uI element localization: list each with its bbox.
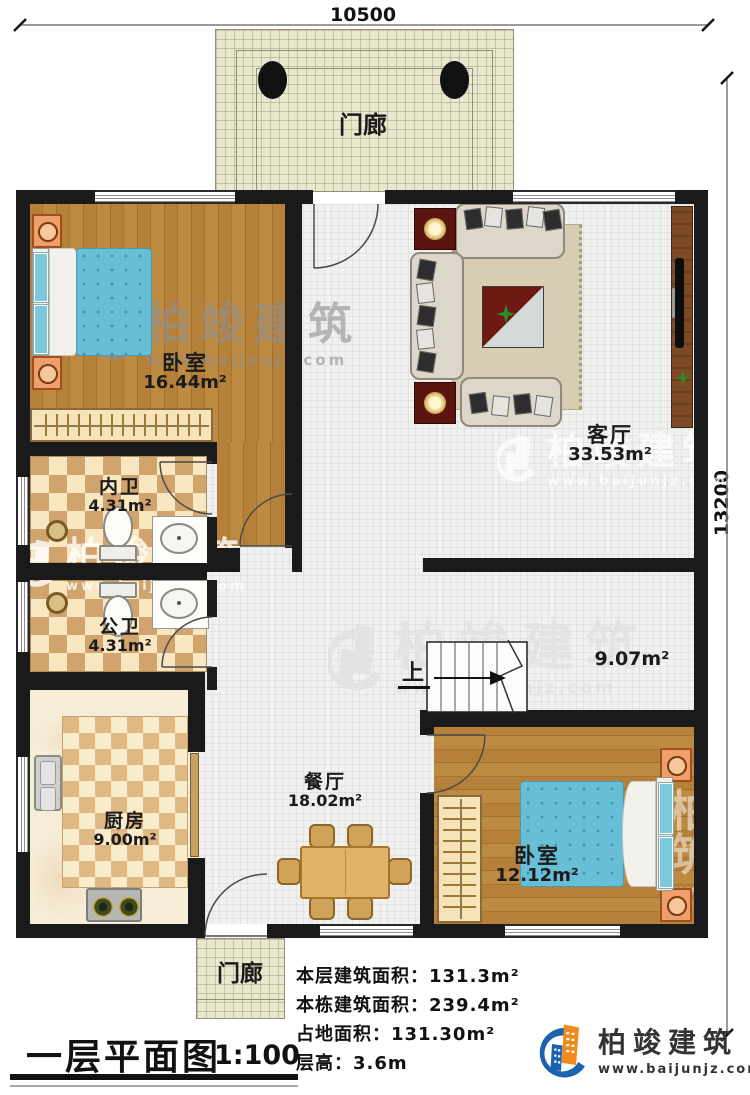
bed-pillow <box>34 305 48 354</box>
stairs-up-text: 上 <box>398 662 430 689</box>
title-underline-thin <box>10 1085 298 1087</box>
info-value: 239.4m² <box>429 995 520 1016</box>
porch-column <box>258 61 287 99</box>
info-floor-area: 本层建筑面积：131.3m² <box>296 962 520 988</box>
bedroom1-label: 卧室 16.44m² <box>120 352 250 393</box>
room-name: 厨房 <box>60 812 190 832</box>
wall <box>207 580 217 617</box>
wall <box>16 442 217 456</box>
info-label: 层高： <box>296 1053 353 1074</box>
wall <box>420 710 694 727</box>
sofa-pillow <box>505 208 524 229</box>
bath-inner-label: 内卫 4.31m² <box>55 478 185 515</box>
info-footprint-area: 占地面积：131.30m² <box>296 1020 495 1046</box>
kitchen-door-leaf <box>190 753 199 857</box>
wall <box>385 190 513 204</box>
room-area: 12.12m² <box>472 867 602 886</box>
info-value: 131.3m² <box>429 966 520 987</box>
info-value: 3.6m <box>353 1053 408 1074</box>
sofa-pillow <box>464 208 484 230</box>
dining-chair <box>309 896 335 920</box>
window <box>513 190 675 204</box>
bed-blanket <box>76 248 152 356</box>
sofa-pillow <box>416 282 435 304</box>
room-area: 16.44m² <box>120 374 250 393</box>
side-table <box>414 208 456 250</box>
wall <box>16 924 205 938</box>
right-dimension-label: 13200 <box>711 453 733 553</box>
info-value: 131.30m² <box>391 1024 495 1045</box>
title-underline <box>10 1074 298 1080</box>
company-name: 柏竣建筑 <box>598 1029 750 1057</box>
room-area: 33.53m² <box>545 446 675 465</box>
dining-chair <box>347 824 373 848</box>
tv-stand <box>672 288 675 318</box>
window <box>16 582 30 652</box>
nightstand <box>660 888 692 922</box>
window <box>505 924 620 938</box>
porch-bottom-label: 门廊 <box>198 962 282 986</box>
dining-table <box>300 846 390 899</box>
drawing-title: 一层平面图 <box>26 1028 221 1080</box>
side-table <box>414 382 456 424</box>
table-lamp <box>424 392 446 414</box>
wall <box>207 456 217 464</box>
wall <box>207 548 240 572</box>
wall <box>285 204 302 548</box>
sofa-pillow <box>534 395 554 417</box>
room-name: 客厅 <box>545 424 675 446</box>
hallway-floor <box>217 442 285 546</box>
wardrobe-rail <box>34 425 209 427</box>
stove-burner <box>93 897 113 917</box>
porch-column <box>440 61 469 99</box>
faucet-dot <box>177 601 181 605</box>
wall <box>207 667 217 690</box>
sofa-pillow <box>543 209 563 231</box>
wall <box>420 793 434 924</box>
wall <box>16 563 207 580</box>
nightstand <box>32 214 62 248</box>
company-logo-icon <box>538 1020 590 1086</box>
window <box>16 757 30 852</box>
sofa-pillow <box>513 393 532 415</box>
dining-chair <box>388 858 412 885</box>
wall <box>420 727 434 735</box>
stove-burner <box>119 897 139 917</box>
sink-basin <box>40 761 56 785</box>
stair-hall-area-label: 9.07m² <box>592 650 672 670</box>
wall <box>16 852 30 938</box>
kitchen-rug <box>62 716 188 888</box>
dining-chair <box>277 858 301 885</box>
bath-public-label: 公卫 4.31m² <box>55 618 185 655</box>
room-area: 4.31m² <box>55 498 185 515</box>
info-label: 本栋建筑面积： <box>296 995 429 1016</box>
sofa-pillow <box>469 392 489 414</box>
info-building-area: 本栋建筑面积：239.4m² <box>296 991 520 1017</box>
sofa-pillow <box>484 206 503 228</box>
wardrobe <box>30 408 213 442</box>
room-area: 18.02m² <box>260 793 390 810</box>
sofa-pillow <box>491 395 510 417</box>
company-logo: 柏竣建筑 www.baijunjz.com <box>538 1020 750 1086</box>
wardrobe-rail <box>460 799 462 919</box>
dining-chair <box>347 896 373 920</box>
floor-plan-canvas: 10500 13200 门廊 门廊 柏竣建筑 www.baijunjz.com <box>0 0 750 1095</box>
sofa-pillow <box>416 259 436 282</box>
wall <box>235 190 313 204</box>
wall <box>188 858 205 924</box>
wall <box>16 652 30 757</box>
bed-pillow <box>659 783 673 834</box>
bed-sheet <box>622 781 656 887</box>
dining-label: 餐厅 18.02m² <box>260 773 390 810</box>
room-area: 4.31m² <box>55 638 185 655</box>
info-storey-height: 层高：3.6m <box>296 1049 408 1075</box>
room-name: 餐厅 <box>260 773 390 793</box>
sofa-pillow <box>416 328 435 350</box>
wall <box>267 924 320 938</box>
window <box>95 190 235 204</box>
window <box>16 477 30 545</box>
living-label: 客厅 33.53m² <box>545 424 675 465</box>
info-label: 占地面积： <box>296 1024 391 1045</box>
stairs-up-label: 上 <box>398 662 430 689</box>
window <box>320 924 413 938</box>
wall <box>292 548 302 572</box>
towel-ring <box>46 520 68 542</box>
room-area: 9.07m² <box>592 650 672 670</box>
tv <box>675 258 684 348</box>
sofa-pillow <box>526 206 545 228</box>
room-name: 卧室 <box>472 845 602 867</box>
wall <box>16 190 30 477</box>
table-lamp <box>424 218 446 240</box>
room-name: 内卫 <box>55 478 185 498</box>
room-name: 卧室 <box>120 352 250 374</box>
bed-pillow <box>34 253 48 302</box>
towel-ring <box>46 592 68 614</box>
drawing-scale: 1:100 <box>214 1040 300 1071</box>
room-name: 公卫 <box>55 618 185 638</box>
faucet-dot <box>177 536 181 540</box>
wall <box>188 690 205 752</box>
top-dimension-label: 10500 <box>330 4 396 26</box>
company-url: www.baijunjz.com <box>598 1062 750 1077</box>
wall <box>423 558 694 572</box>
info-label: 本层建筑面积： <box>296 966 429 987</box>
sofa-pillow <box>417 305 437 327</box>
dining-chair <box>309 824 335 848</box>
toilet-tank <box>99 545 137 561</box>
bed-pillow <box>659 837 673 888</box>
room-area: 9.00m² <box>60 832 190 849</box>
sofa-pillow <box>417 351 437 373</box>
table-seam <box>345 850 346 895</box>
sink-basin <box>40 787 56 811</box>
porch-step-line <box>197 999 284 1000</box>
nightstand <box>32 356 62 390</box>
porch-top-label: 门廊 <box>318 113 408 138</box>
kitchen-label: 厨房 9.00m² <box>60 812 190 849</box>
company-logo-text: 柏竣建筑 www.baijunjz.com <box>598 1029 750 1077</box>
bedroom2-label: 卧室 12.12m² <box>472 845 602 886</box>
stove <box>86 888 142 922</box>
wall <box>16 672 205 690</box>
wall <box>694 190 708 938</box>
wall <box>413 924 505 938</box>
kitchen-sink <box>34 755 62 811</box>
coffee-table <box>482 286 544 348</box>
